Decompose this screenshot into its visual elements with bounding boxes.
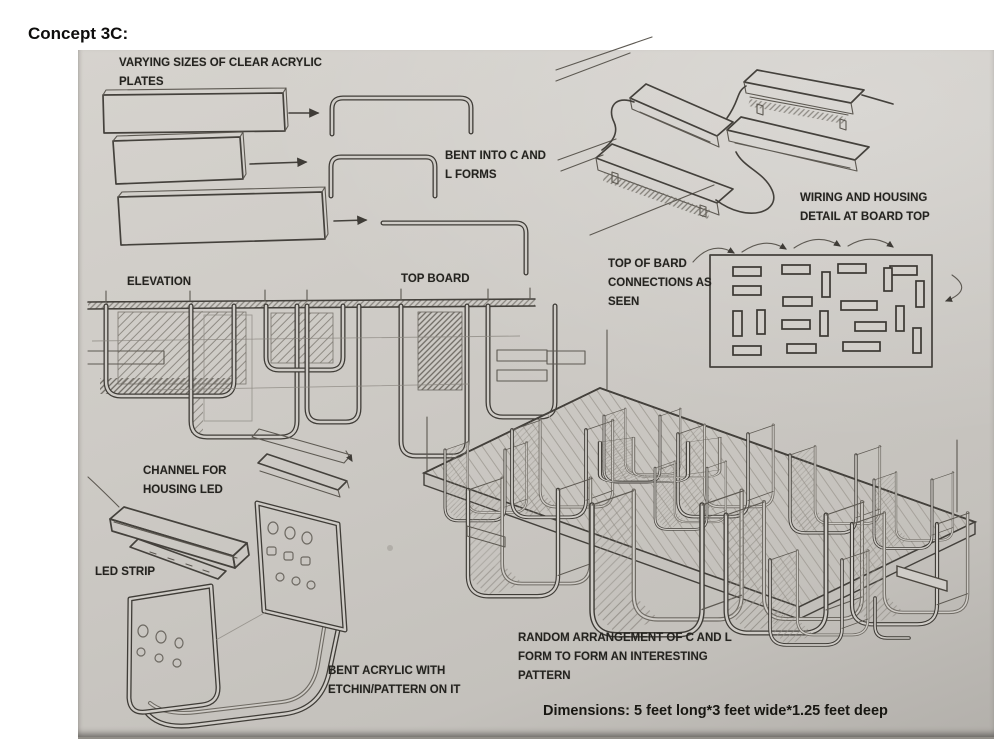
concept-sheet: Concept 3C: <box>0 0 1000 750</box>
board-connections-sketch <box>693 239 962 367</box>
annotation-arrangement: RANDOM ARRANGEMENT OF C AND L FORM TO FO… <box>518 629 743 686</box>
annotation-etched-acrylic: BENT ACRYLIC WITH ETCHIN/PATTERN ON IT <box>328 662 488 700</box>
plates-sketch <box>103 88 366 245</box>
annotation-board-connections: TOP OF BARD CONNECTIONS AS SEEN <box>608 255 713 312</box>
c-l-forms-sketch <box>331 98 526 273</box>
led-channel-sketch <box>88 429 352 579</box>
annotation-dimensions: Dimensions: 5 feet long*3 feet wide*1.25… <box>543 703 888 719</box>
annotation-top-board: TOP BOARD <box>401 270 470 289</box>
etched-acrylic-sketch <box>129 503 345 726</box>
annotation-channel: CHANNEL FOR HOUSING LED <box>143 462 243 500</box>
annotation-wiring: WIRING AND HOUSING DETAIL AT BOARD TOP <box>800 189 950 227</box>
annotation-bent-forms: BENT INTO C AND L FORMS <box>445 147 550 185</box>
annotation-plates: VARYING SIZES OF CLEAR ACRYLIC PLATES <box>119 54 354 92</box>
sketch-drawing <box>0 0 1000 750</box>
isometric-fixture-sketch <box>387 330 975 645</box>
annotation-elevation: ELEVATION <box>127 273 191 292</box>
annotation-led-strip: LED STRIP <box>95 563 155 582</box>
